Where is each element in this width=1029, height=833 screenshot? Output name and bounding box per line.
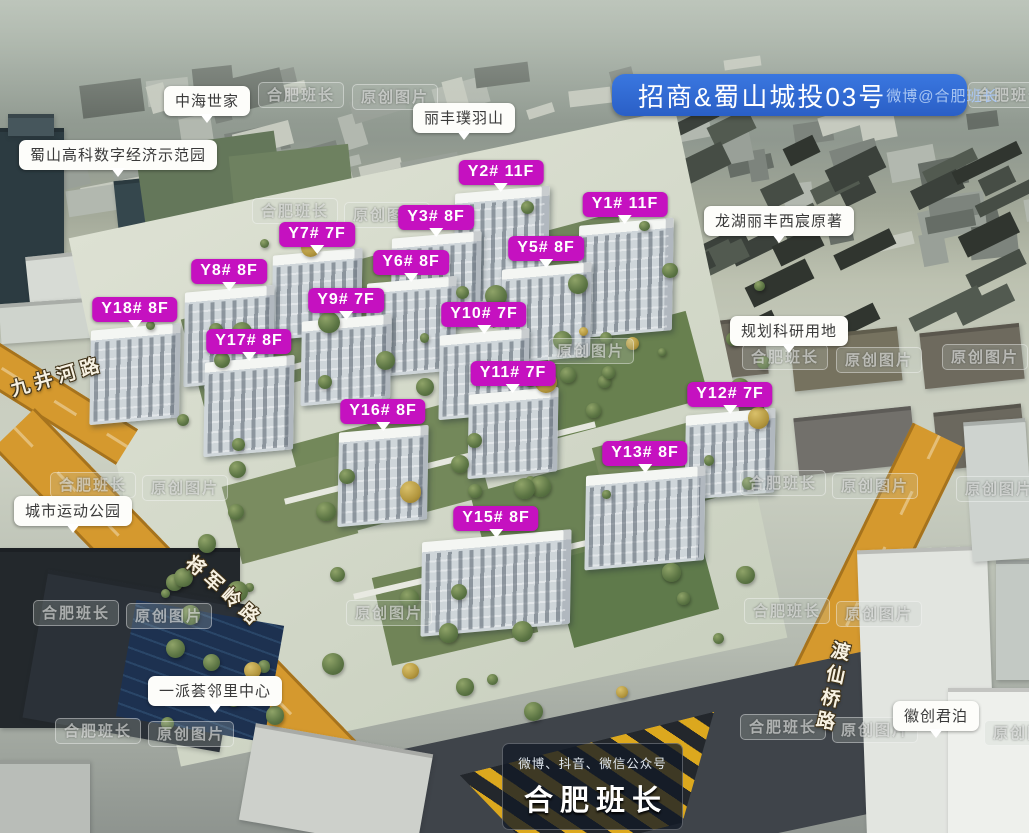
- unit-label-Y10: Y10# 7F: [441, 302, 526, 327]
- unit-label-Y9: Y9# 7F: [308, 288, 384, 313]
- unit-label-Y18: Y18# 8F: [92, 297, 177, 322]
- poi-label-gaoke: 蜀山高科数字经济示范园: [19, 140, 217, 170]
- unit-label-Y15: Y15# 8F: [453, 506, 538, 531]
- poi-label-longhu: 龙湖丽丰西宸原著: [704, 206, 854, 236]
- unit-label-Y16: Y16# 8F: [340, 399, 425, 424]
- social-account: 合肥班长: [513, 777, 672, 819]
- unit-label-Y13: Y13# 8F: [602, 441, 687, 466]
- poi-label-zhonghai: 中海世家: [164, 86, 250, 116]
- unit-label-Y1: Y1# 11F: [583, 192, 668, 217]
- poi-label-yipai: 一派荟邻里中心: [148, 676, 282, 706]
- unit-label-Y17: Y17# 8F: [206, 329, 291, 354]
- unit-label-Y6: Y6# 8F: [373, 250, 449, 275]
- social-platforms: 微博、抖音、微信公众号: [513, 753, 672, 772]
- poi-label-huichuang: 徽创君泊: [893, 701, 979, 731]
- road-label-jiangjunling: 将军岭路: [180, 548, 269, 632]
- poi-label-park: 城市运动公园: [14, 496, 132, 526]
- title-banner: 招商&蜀山城投03号 微博@合肥班长: [612, 74, 967, 116]
- banner-weibo-handle: 微博@合肥班长: [886, 85, 998, 106]
- unit-label-Y2: Y2# 11F: [459, 160, 544, 185]
- unit-label-Y8: Y8# 8F: [191, 259, 267, 284]
- road-label-duxianqiao: 渡仙桥路: [814, 639, 852, 736]
- unit-label-Y7: Y7# 7F: [279, 222, 355, 247]
- unit-label-Y12: Y12# 7F: [687, 382, 772, 407]
- unit-label-Y3: Y3# 8F: [398, 205, 474, 230]
- social-media-box: 微博、抖音、微信公众号 合肥班长: [502, 743, 683, 830]
- poi-label-lifeng: 丽丰璞羽山: [413, 103, 515, 133]
- aerial-site-plan: 合肥班长原创图片合肥班长合肥班长原创图片原创图片合肥班长原创图片原创图片合肥班长…: [0, 0, 1029, 833]
- banner-title: 招商&蜀山城投03号: [638, 77, 886, 114]
- unit-label-Y11: Y11# 7F: [471, 361, 556, 386]
- label-layer: Y2# 11FY1# 11FY3# 8FY7# 7FY5# 8FY6# 8FY8…: [0, 0, 1029, 833]
- road-label-jiujinghe: 九井河路: [7, 349, 107, 401]
- poi-label-keyan: 规划科研用地: [730, 316, 848, 346]
- unit-label-Y5: Y5# 8F: [508, 236, 584, 261]
